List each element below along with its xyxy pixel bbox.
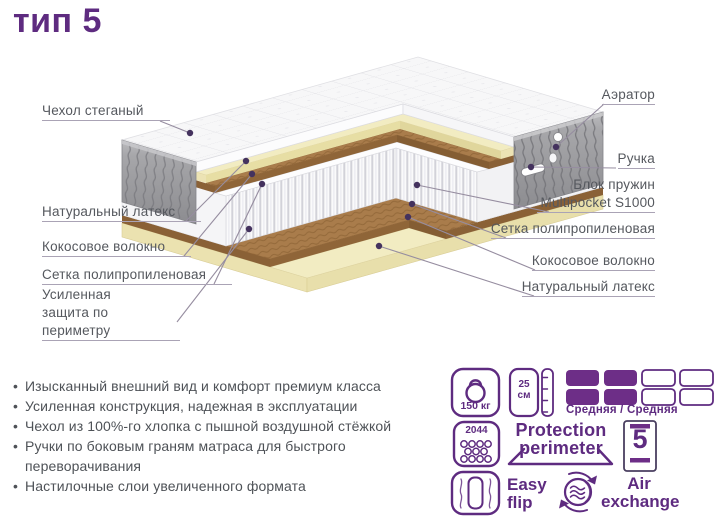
leader-dot (409, 201, 415, 207)
aerator-hole (554, 133, 563, 142)
max-weight-value: 150 кг (452, 400, 499, 412)
air-exchange-label-line2: exchange (601, 492, 677, 512)
leader-dot (553, 144, 559, 150)
leader-dot (528, 164, 534, 170)
layer-label-coconut-left: Кокосовое волокно (42, 238, 191, 257)
leader-dot (243, 158, 249, 164)
layer-label-latex-right: Натуральный латекс (522, 278, 655, 297)
layer-label-coconut-right: Кокосовое волокно (532, 252, 655, 271)
layer-label-perimeter: Усиленная защита по периметру (42, 286, 180, 341)
feature-item: Изысканный внешний вид и комфорт премиум… (12, 376, 414, 396)
leader-dot (376, 243, 382, 249)
feature-item: Чехол из 100%-го хлопка с пышной воздушн… (12, 416, 414, 436)
easy-flip-icon (452, 472, 499, 514)
air-exchange-label-line1: Air (601, 474, 677, 494)
mattress-type-infographic: тип 5 Чехол стеганый Натуральный латекс … (0, 0, 727, 520)
easy-flip-label-line2: flip (507, 493, 567, 513)
leader-line (379, 246, 534, 296)
springs-count-value: 2044 (454, 425, 499, 436)
feature-item: Настилочные слои увеличенного формата (12, 476, 414, 496)
layer-label-handle: Ручка (618, 150, 656, 169)
leader-dot (259, 181, 265, 187)
leader-dot (414, 182, 420, 188)
page-title: тип 5 (13, 2, 102, 41)
layer-label-net-left: Сетка полипропиленовая (42, 266, 232, 285)
layer-label-cover: Чехол стеганый (42, 102, 170, 121)
feature-list: Изысканный внешний вид и комфорт премиум… (12, 376, 414, 496)
easy-flip-label-line1: Easy (507, 475, 567, 495)
height-unit: см (510, 390, 538, 401)
feature-item: Усиленная конструкция, надежная в эксплу… (12, 396, 414, 416)
leader-dot (249, 171, 255, 177)
warranty-years-value: 5 (624, 424, 656, 455)
layer-label-spring-block: Блок пружин Multipocket S1000 (537, 176, 655, 213)
leader-dot (246, 226, 252, 232)
layer-label-aerator: Аэратор (602, 86, 655, 105)
height-value: 25 (510, 379, 538, 390)
firmness-indicator (566, 370, 713, 405)
leader-dot (405, 214, 411, 220)
layer-label-net-right: Сетка полипропиленовая (491, 220, 655, 239)
firmness-label: Средняя / Средняя (566, 404, 726, 416)
leader-dot (187, 130, 193, 136)
protection-label-line2: perimeter (500, 438, 622, 459)
feature-item: Ручки по боковым граням матраса для быст… (12, 436, 414, 476)
aerator-hole-2 (549, 153, 557, 163)
layer-label-latex-left: Натуральный латекс (42, 203, 201, 222)
